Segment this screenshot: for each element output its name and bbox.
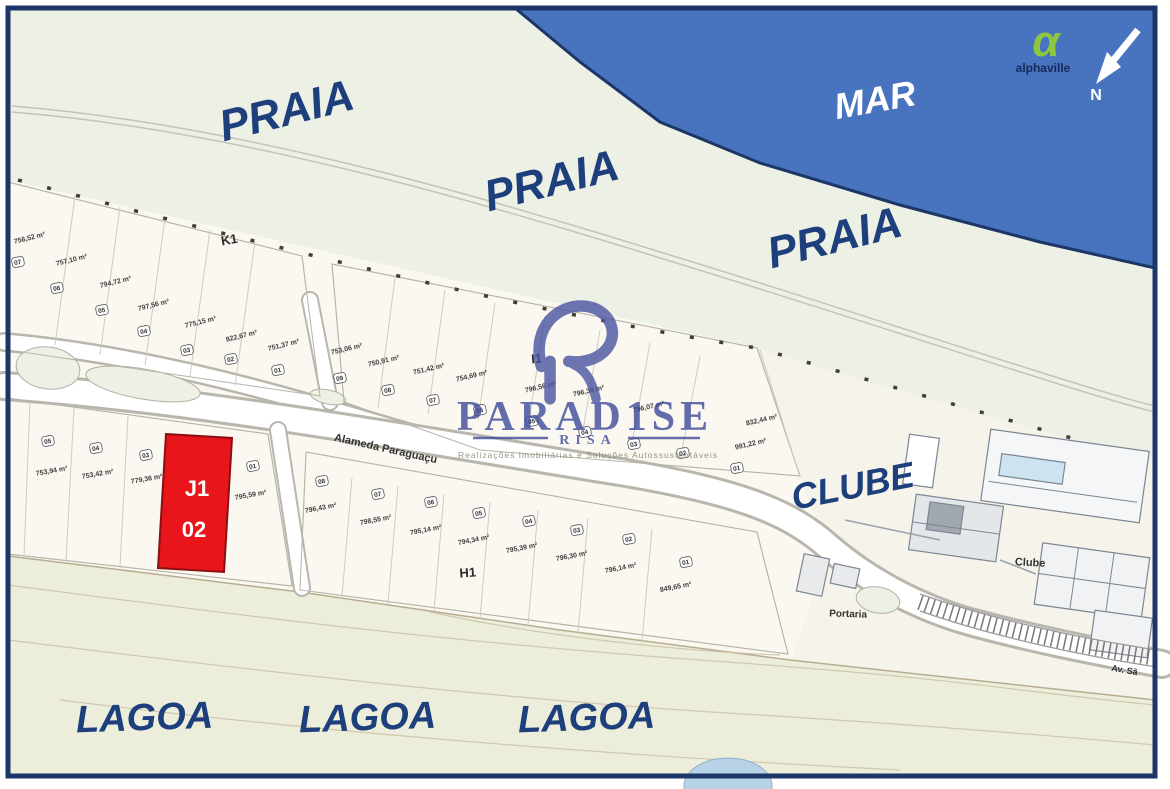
club-label-small: Clube xyxy=(1015,556,1046,570)
lagoon-label-1: LAGOA xyxy=(75,695,214,742)
gatehouse-label: Portaria xyxy=(829,608,868,620)
watermark-subtitle: RISA xyxy=(559,433,616,448)
block-label: H1 xyxy=(459,564,477,580)
lagoon-label-3: LAGOA xyxy=(517,695,656,742)
block-label: K1 xyxy=(220,231,239,249)
lagoon-label-2: LAGOA xyxy=(298,695,437,742)
alphaville-alpha-icon: α xyxy=(1032,17,1061,66)
highlighted-lot[interactable]: J1 02 xyxy=(158,434,232,572)
site-plan-map: J1 02 K107756,52 m²06757,10 m²05794,72 m… xyxy=(0,0,1170,789)
watermark-tagline: Realizações Imobiliárias e Soluções Auto… xyxy=(458,450,718,460)
highlight-lot-label: 02 xyxy=(182,517,206,542)
map-canvas: J1 02 K107756,52 m²06757,10 m²05794,72 m… xyxy=(0,0,1170,789)
north-label: N xyxy=(1090,87,1102,104)
alphaville-wordmark: alphaville xyxy=(1016,61,1071,75)
highlight-block-label: J1 xyxy=(185,476,209,501)
